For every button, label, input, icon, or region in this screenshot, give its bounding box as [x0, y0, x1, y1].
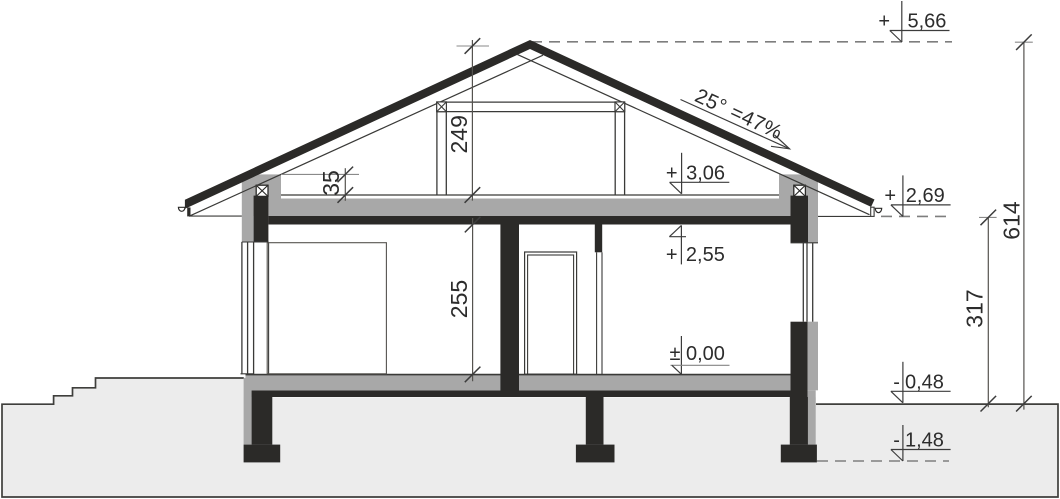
- svg-text:-: -: [893, 371, 900, 393]
- svg-text:1,48: 1,48: [905, 430, 944, 452]
- svg-text:0,48: 0,48: [905, 371, 944, 393]
- svg-text:255: 255: [446, 280, 472, 318]
- svg-text:35: 35: [318, 170, 344, 196]
- svg-text:0,00: 0,00: [686, 343, 725, 365]
- svg-text:+: +: [878, 11, 890, 33]
- svg-text:2,69: 2,69: [906, 185, 945, 207]
- svg-text:-: -: [893, 430, 900, 452]
- svg-text:+: +: [666, 244, 678, 266]
- svg-text:2,55: 2,55: [686, 244, 725, 266]
- svg-text:3,06: 3,06: [686, 162, 725, 184]
- svg-text:+: +: [884, 185, 896, 207]
- svg-text:5,66: 5,66: [908, 11, 947, 33]
- svg-text:±: ±: [670, 343, 681, 365]
- svg-text:249: 249: [446, 115, 472, 153]
- svg-text:614: 614: [999, 201, 1025, 240]
- svg-text:+: +: [666, 162, 678, 184]
- svg-text:317: 317: [962, 289, 988, 327]
